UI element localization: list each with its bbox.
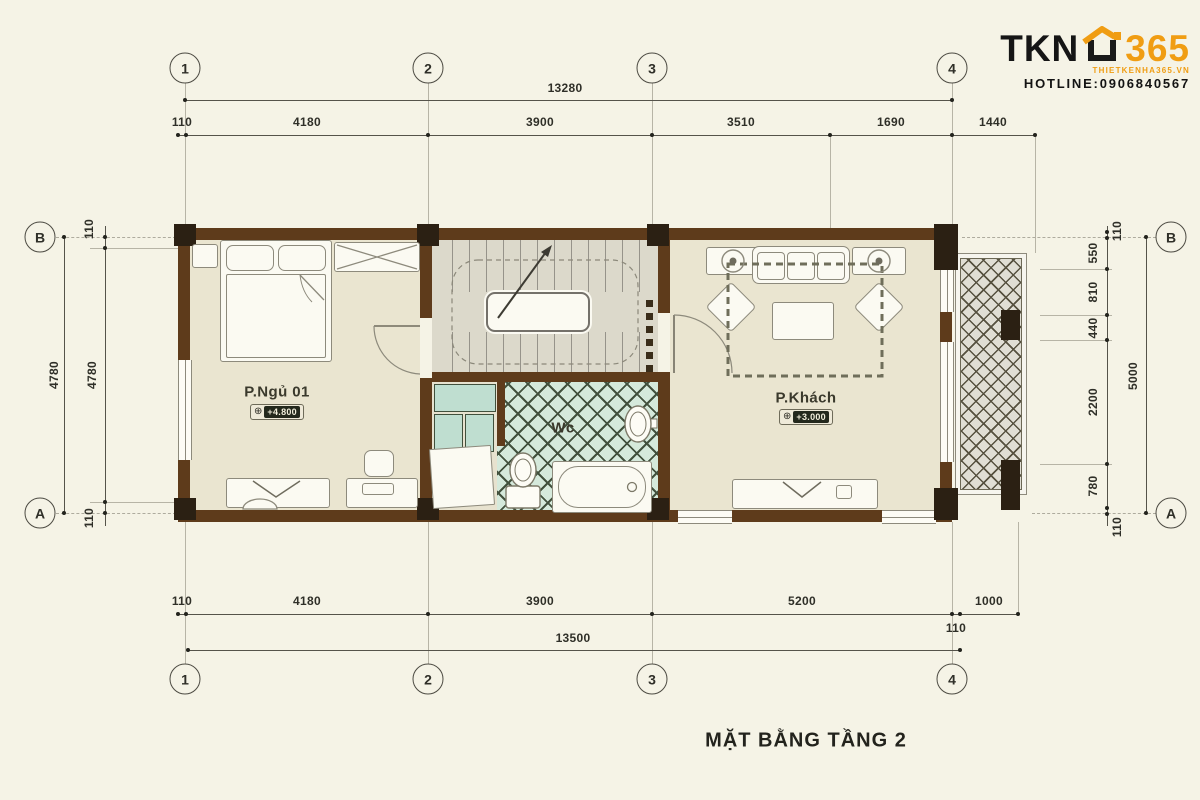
tick: [62, 511, 66, 515]
tick: [426, 612, 430, 616]
grid-bubble-3-top: 3: [637, 53, 668, 84]
grid-line-1-top: [185, 83, 186, 228]
dim-right-550: 550: [1086, 243, 1100, 264]
living-label: P.Khách: [776, 390, 837, 407]
tick: [183, 98, 187, 102]
dim-line-bottom-total: [188, 650, 960, 651]
living-level-tag: ⊕ +3.000: [779, 409, 833, 425]
logo-row: TKN 365: [978, 26, 1190, 64]
wall-living-upper: [658, 240, 670, 313]
dim-top-total: 13280: [548, 81, 583, 95]
tick: [958, 612, 962, 616]
column-1A: [174, 498, 196, 520]
tick: [1105, 338, 1109, 342]
bedroom-label: P.Ngủ 01: [244, 384, 309, 401]
tick: [1105, 236, 1109, 240]
dim-line-right-inner: [1107, 226, 1108, 526]
grid-bubble-2-top: 2: [413, 53, 444, 84]
window-left: [178, 360, 192, 460]
ext-line-right-3: [1040, 340, 1112, 341]
dim-bottom-5200: 5200: [788, 594, 816, 608]
bedroom-level-value: +4.800: [264, 406, 300, 418]
grid-line-A-left: [56, 513, 176, 514]
balcony-column-lower: [1001, 460, 1020, 510]
wall-top: [178, 228, 952, 240]
dim-line-bottom-segments: [178, 614, 1018, 615]
dim-top-110: 110: [172, 115, 192, 129]
bed-blanket: [226, 274, 326, 358]
tick: [1105, 512, 1109, 516]
dim-top-4180: 4180: [293, 115, 321, 129]
grid-line-2-top: [428, 83, 429, 228]
level-marker-icon: ⊕: [254, 407, 262, 417]
dressing-table: [226, 478, 330, 508]
stair-treads-upper: [436, 240, 654, 292]
tick: [1105, 462, 1109, 466]
ext-line-right-2: [1040, 315, 1112, 316]
column-4A: [934, 488, 958, 520]
dim-right-2200: 2200: [1086, 388, 1100, 416]
floorplan-page: { "logo": { "brand": "TKN", "number": "3…: [0, 0, 1200, 800]
dim-right-780: 780: [1086, 476, 1100, 497]
coffee-table: [772, 302, 834, 340]
sofa-seat-1: [757, 252, 785, 280]
grid-line-2-bottom: [428, 522, 429, 664]
wardrobe: [334, 242, 420, 272]
tick: [184, 612, 188, 616]
tick: [950, 133, 954, 137]
grid-line-3-bottom: [652, 522, 653, 664]
tick: [650, 612, 654, 616]
tick: [1105, 267, 1109, 271]
grid-bubble-A-right: A: [1156, 498, 1187, 529]
grid-line-A-right: [1032, 513, 1156, 514]
sofa-seat-2: [787, 252, 815, 280]
dim-right-total: 5000: [1126, 362, 1140, 390]
ext-line-right-1: [1040, 269, 1112, 270]
dim-left-inner: 4780: [85, 361, 99, 389]
stair-handrail: [486, 292, 590, 332]
desk-chair: [364, 450, 394, 477]
grid-line-1-bottom: [185, 522, 186, 664]
grid-line-3-top: [652, 83, 653, 228]
grid-bubble-1-bottom: 1: [170, 664, 201, 695]
level-marker-icon: ⊕: [783, 412, 791, 422]
tick: [1105, 230, 1109, 234]
dim-right-440: 440: [1086, 318, 1100, 339]
grid-bubble-B-right: B: [1156, 222, 1187, 253]
drawing-title: MẶT BẰNG TẦNG 2: [705, 730, 907, 753]
dim-bottom-110a: 110: [172, 594, 192, 608]
grid-bubble-3-bottom: 3: [637, 664, 668, 695]
living-level-value: +3.000: [793, 411, 829, 423]
ext-line-right-4: [1040, 464, 1112, 465]
pillow-left: [226, 245, 274, 271]
bedroom-level-tag: ⊕ +4.800: [250, 404, 304, 420]
balcony-hatch: [960, 258, 1022, 490]
dim-bottom-110b: 110: [946, 621, 966, 635]
grid-bubble-4-top: 4: [937, 53, 968, 84]
grid-bubble-2-bottom: 2: [413, 664, 444, 695]
dim-bottom-4180: 4180: [293, 594, 321, 608]
dim-left-outer: 4780: [47, 361, 61, 389]
wall-bedroom-upper: [420, 240, 432, 318]
dim-bottom-total: 13500: [556, 631, 591, 645]
tick: [186, 648, 190, 652]
tick: [426, 133, 430, 137]
tick: [103, 500, 107, 504]
stair-treads-lower: [436, 332, 654, 372]
tick: [958, 648, 962, 652]
column-4B: [934, 224, 958, 270]
sofa-seat-3: [817, 252, 845, 280]
wall-living-lower: [658, 375, 670, 510]
dim-right-110-bottom: 110: [1110, 517, 1124, 537]
tick: [176, 133, 180, 137]
grid-bubble-4-bottom: 4: [937, 664, 968, 695]
ext-line-1000: [1018, 522, 1019, 614]
tick: [1105, 506, 1109, 510]
tick: [950, 612, 954, 616]
logo-brand: TKN: [1000, 33, 1079, 64]
tick: [1144, 511, 1148, 515]
column-1B: [174, 224, 196, 246]
dim-line-top-total: [185, 100, 952, 101]
tick: [1016, 612, 1020, 616]
dim-line-right-outer: [1146, 237, 1147, 513]
desk-laptop: [362, 483, 394, 495]
grid-bubble-B-left: B: [25, 222, 56, 253]
tv-cabinet: [732, 479, 878, 509]
dim-right-110-top: 110: [1110, 221, 1124, 241]
wc-label: Wc: [551, 420, 574, 437]
wall-bedroom-lower: [420, 378, 432, 510]
dim-left-110-bottom: 110: [82, 508, 96, 528]
balcony-column-upper: [1001, 310, 1020, 340]
tick: [1144, 235, 1148, 239]
ext-line-3510: [830, 136, 831, 228]
closet-door-leaf: [429, 445, 495, 509]
dim-bottom-3900: 3900: [526, 594, 554, 608]
tick: [62, 235, 66, 239]
logo-hotline: HOTLINE:0906840567: [978, 76, 1190, 91]
dim-right-810: 810: [1086, 282, 1100, 303]
tick: [1105, 313, 1109, 317]
grid-line-4-top: [952, 83, 953, 228]
window-bottom-right: [882, 510, 936, 524]
nightstand: [192, 244, 218, 268]
logo-number: 365: [1125, 33, 1190, 64]
logo-house-icon: [1081, 26, 1123, 64]
tick: [1033, 133, 1037, 137]
wall-closet-divider: [497, 382, 505, 446]
dim-top-3900: 3900: [526, 115, 554, 129]
grid-line-4-bottom: [952, 522, 953, 664]
balcony-door: [940, 342, 954, 462]
tick: [184, 133, 188, 137]
bathtub-inner: [558, 466, 646, 508]
closet-cabinet-top: [434, 384, 496, 412]
grid-bubble-1-top: 1: [170, 53, 201, 84]
grid-line-B-left: [56, 237, 176, 238]
dim-bottom-1000: 1000: [975, 594, 1003, 608]
dim-top-1440: 1440: [979, 115, 1007, 129]
grid-line-B-right: [962, 237, 1156, 238]
side-table-right: [852, 247, 906, 275]
dim-top-1690: 1690: [877, 115, 905, 129]
pillow-right: [278, 245, 326, 271]
window-bottom-left: [678, 510, 732, 524]
tv-device: [836, 485, 852, 499]
tick: [950, 98, 954, 102]
tick: [650, 133, 654, 137]
dim-left-110-top: 110: [82, 219, 96, 239]
tick: [103, 511, 107, 515]
dim-line-left-outer: [64, 237, 65, 513]
grid-bubble-A-left: A: [25, 498, 56, 529]
tick: [828, 133, 832, 137]
dim-line-top-segments: [178, 135, 1035, 136]
window-right-upper: [940, 270, 954, 312]
logo: TKN 365 THIETKENHA365.VN HOTLINE:0906840…: [978, 26, 1190, 91]
wall-wc-top: [432, 372, 670, 382]
tick: [103, 235, 107, 239]
dim-top-3510: 3510: [727, 115, 755, 129]
dim-line-left-inner: [105, 226, 106, 526]
tick: [103, 246, 107, 250]
tick: [176, 612, 180, 616]
ext-line-1440: [1035, 136, 1036, 253]
